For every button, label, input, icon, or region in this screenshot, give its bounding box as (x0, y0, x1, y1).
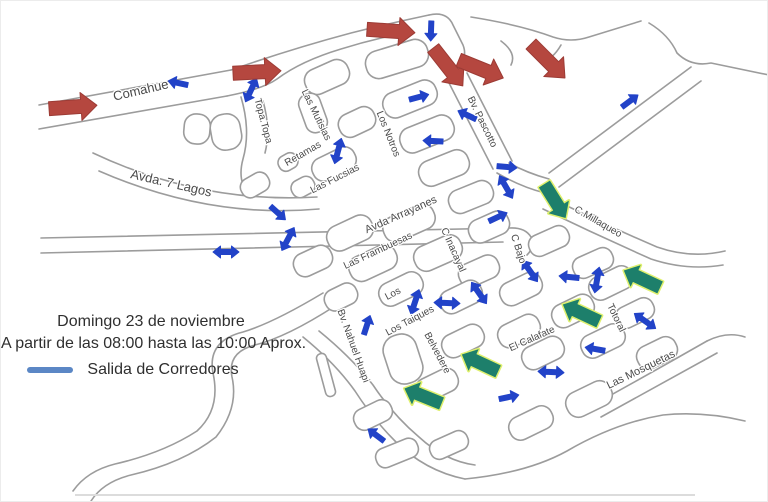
event-date: Domingo 23 de noviembre (1, 311, 301, 333)
city-block (445, 177, 497, 216)
event-time: A partir de las 08:00 hasta las 10:00 Ap… (1, 333, 301, 355)
city-block (208, 112, 244, 153)
city-block (350, 396, 396, 433)
route-direction-arrow (498, 389, 520, 405)
route-direction-arrow (494, 173, 517, 202)
road (549, 67, 691, 173)
legend-color-swatch (27, 367, 73, 373)
entry-arrow (521, 34, 575, 88)
route-direction-arrow (167, 75, 189, 91)
route-direction-arrow (497, 160, 518, 174)
road (549, 197, 725, 254)
legend-row: Salida de Corredores (1, 359, 301, 381)
page-edge-line (75, 494, 695, 496)
city-block (315, 352, 336, 397)
city-block (237, 169, 273, 201)
start-corridor-arrow (619, 260, 665, 299)
street-map: ComahueAvda. 7 LagosTopa.TopaLas Mutisia… (1, 1, 768, 502)
city-block (362, 36, 431, 81)
race-route-flyer: ComahueAvda. 7 LagosTopa.TopaLas Mutisia… (0, 0, 768, 502)
route-direction-arrow (267, 202, 290, 224)
city-block (379, 330, 427, 388)
start-corridor-arrow (534, 178, 576, 225)
city-block (496, 269, 546, 310)
route-direction-arrow (425, 21, 438, 41)
city-block (525, 222, 572, 259)
city-block (335, 103, 380, 141)
road (649, 23, 768, 75)
road (707, 335, 745, 341)
route-direction-arrow (358, 314, 376, 337)
city-block (415, 146, 473, 190)
city-block (505, 402, 557, 444)
street-label-comahue: Comahue (112, 76, 170, 103)
route-direction-arrow (618, 90, 641, 112)
city-block (396, 111, 458, 156)
event-legend: Domingo 23 de noviembre A partir de las … (1, 311, 301, 381)
route-direction-arrow (277, 225, 300, 254)
street-label-c-bajo: C Bajo (508, 233, 528, 265)
city-block (183, 113, 212, 145)
road (501, 41, 513, 65)
street-label-topa-topa: Topa.Topa (252, 97, 275, 145)
city-block (375, 268, 427, 310)
legend-start-label: Salida de Corredores (87, 359, 238, 381)
road (471, 17, 641, 40)
road (465, 414, 745, 479)
street-label-avda-7-lagos: Avda. 7 Lagos (129, 166, 214, 199)
